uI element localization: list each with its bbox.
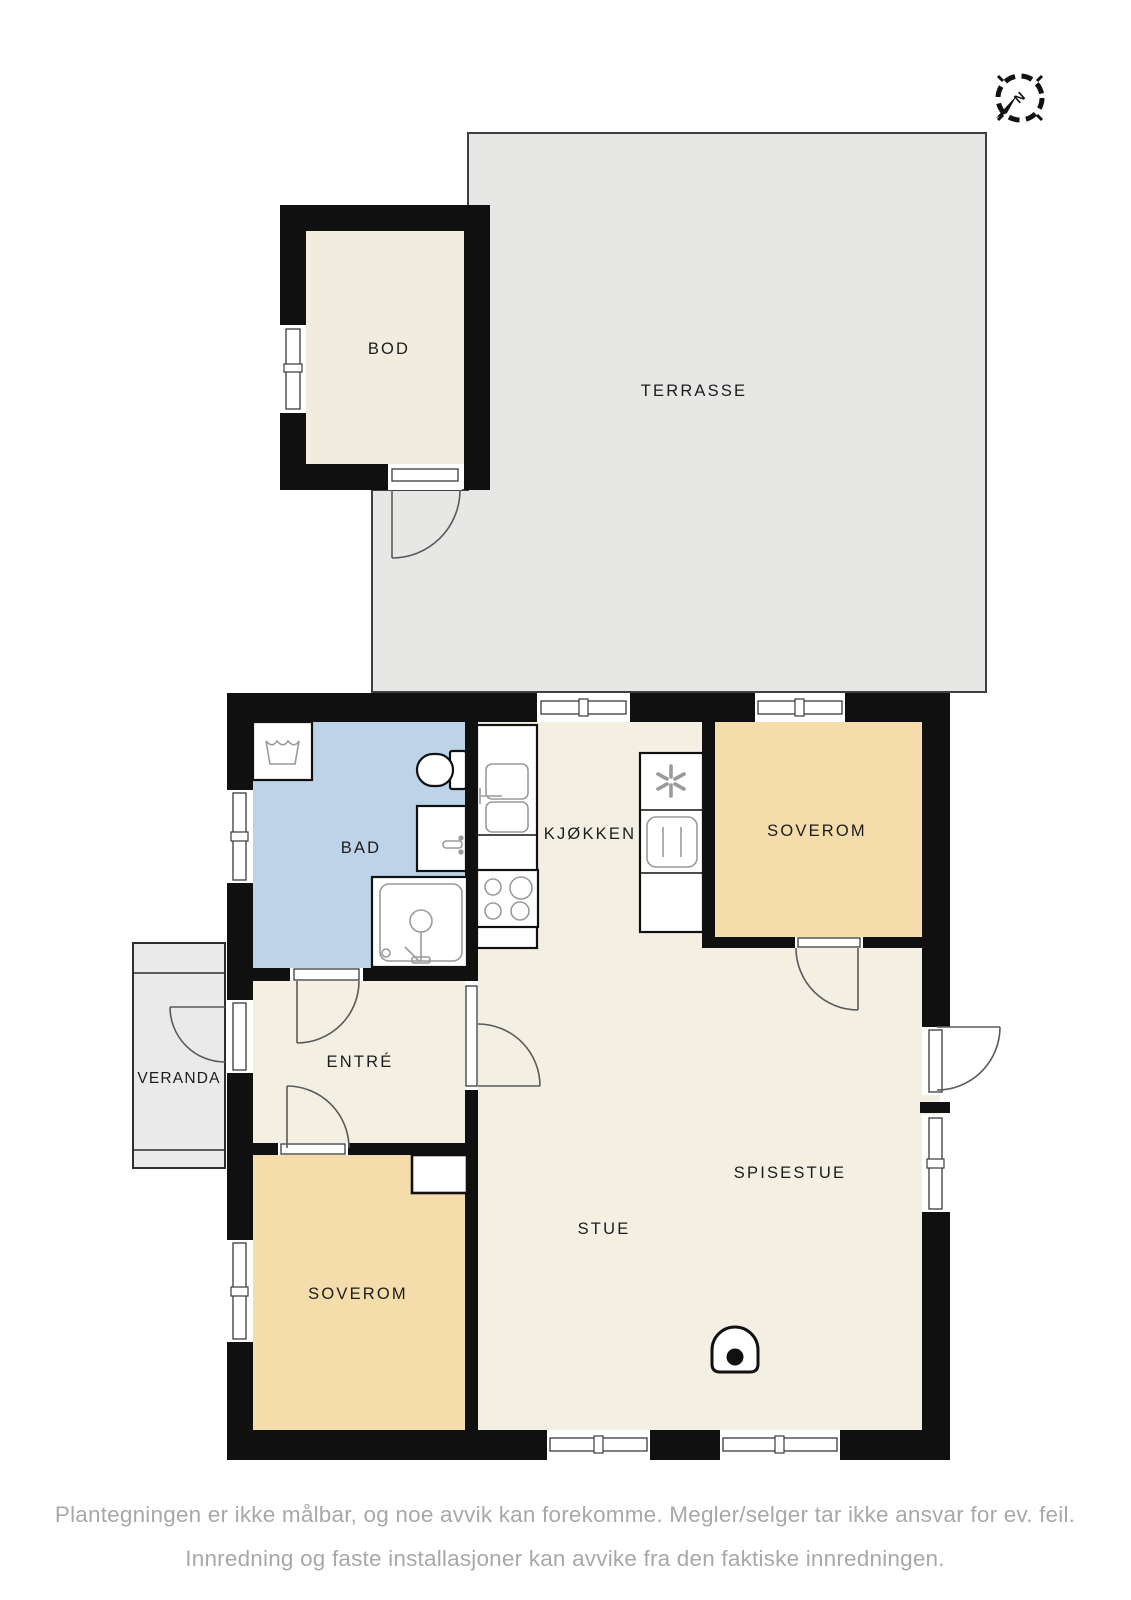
window-divider bbox=[284, 364, 302, 372]
compass-tick bbox=[1037, 76, 1042, 81]
hall-label: ENTRÉ bbox=[327, 1052, 394, 1071]
living-room-label: STUE bbox=[578, 1220, 631, 1238]
bedroom-sw-label: SOVEROM bbox=[308, 1285, 408, 1303]
counter-body bbox=[640, 753, 703, 932]
fireplace bbox=[712, 1327, 758, 1372]
bedroom-ne-label: SOVEROM bbox=[767, 822, 867, 840]
wall-segment bbox=[363, 968, 478, 981]
wall-segment bbox=[465, 1090, 478, 1430]
wall-segment bbox=[863, 937, 922, 948]
compass-north-label: N bbox=[1011, 89, 1028, 106]
wall-segment bbox=[630, 693, 755, 722]
floor-plan-drawing: TERRASSE BOD VERANDA bbox=[0, 0, 1131, 1600]
wall-segment bbox=[227, 693, 537, 722]
dining-room-label: SPISESTUE bbox=[734, 1164, 846, 1182]
floor-plan-page: TERRASSE BOD VERANDA bbox=[0, 0, 1131, 1600]
door-frame bbox=[798, 938, 860, 947]
wall-segment bbox=[227, 1430, 547, 1460]
window-divider bbox=[231, 832, 248, 841]
toilet-bowl bbox=[417, 754, 453, 786]
wall-segment bbox=[920, 1102, 950, 1113]
compass-tick bbox=[998, 76, 1003, 81]
kitchen-label: KJØKKEN bbox=[544, 825, 636, 843]
wall-segment bbox=[650, 1430, 720, 1460]
veranda-label: VERANDA bbox=[137, 1070, 220, 1087]
bathroom-label: BAD bbox=[341, 839, 382, 857]
disclaimer: Plantegningen er ikke målbar, og noe avv… bbox=[55, 1502, 1075, 1571]
toilet bbox=[417, 751, 466, 789]
terrace-label: TERRASSE bbox=[641, 382, 748, 400]
window bbox=[227, 790, 253, 883]
window bbox=[547, 1430, 650, 1460]
window bbox=[280, 325, 306, 413]
window-divider bbox=[231, 1287, 248, 1296]
wall-segment bbox=[464, 205, 490, 490]
window bbox=[537, 693, 630, 722]
door bbox=[922, 1027, 1000, 1095]
veranda-deck bbox=[133, 943, 225, 1168]
wall-segment bbox=[227, 1073, 253, 1240]
kitchen-counter-right bbox=[640, 753, 703, 932]
window-divider bbox=[927, 1159, 944, 1168]
stove-top bbox=[477, 870, 538, 927]
wall-segment bbox=[280, 464, 390, 490]
door-frame bbox=[281, 1144, 345, 1154]
door-frame bbox=[294, 969, 359, 980]
bathroom-sink bbox=[417, 806, 466, 871]
wall-segment bbox=[348, 1143, 478, 1155]
wardrobe bbox=[412, 1155, 467, 1193]
wall-segment bbox=[227, 883, 253, 1000]
stove bbox=[477, 870, 538, 927]
laundry-sink-cabinet bbox=[253, 722, 312, 780]
veranda: VERANDA bbox=[133, 943, 225, 1168]
wall-segment bbox=[702, 937, 795, 948]
storage-label: BOD bbox=[368, 340, 410, 358]
door-frame bbox=[929, 1030, 942, 1092]
door-frame bbox=[233, 1003, 246, 1070]
sink-faucet-handle bbox=[458, 835, 463, 840]
shower-base bbox=[372, 877, 467, 967]
wall-segment bbox=[227, 693, 253, 790]
compass-tick bbox=[1037, 115, 1042, 120]
wall-segment bbox=[922, 693, 950, 1027]
window-divider bbox=[594, 1436, 603, 1453]
disclaimer-line-2: Innredning og faste installasjoner kan a… bbox=[185, 1546, 944, 1571]
laundry-sink bbox=[253, 722, 312, 780]
wall-segment bbox=[922, 1212, 950, 1460]
window-divider bbox=[775, 1436, 784, 1453]
wall-segment bbox=[280, 205, 490, 231]
compass-icon: N bbox=[996, 76, 1042, 120]
window bbox=[227, 1240, 253, 1342]
fireplace-flue bbox=[727, 1349, 744, 1366]
kitchen-counter-left bbox=[477, 725, 538, 948]
window bbox=[755, 693, 845, 722]
window bbox=[922, 1115, 950, 1212]
window-divider bbox=[795, 699, 804, 716]
window bbox=[720, 1430, 840, 1460]
sink-faucet-handle bbox=[458, 849, 463, 854]
door-frame bbox=[392, 469, 458, 481]
disclaimer-line-1: Plantegningen er ikke målbar, og noe avv… bbox=[55, 1502, 1075, 1527]
wall-segment bbox=[280, 205, 306, 325]
door-frame bbox=[466, 986, 477, 1086]
house-floors bbox=[240, 705, 940, 1445]
shower bbox=[372, 877, 467, 967]
window-divider bbox=[579, 699, 588, 716]
wall-segment bbox=[253, 1143, 278, 1155]
wall-segment bbox=[253, 968, 290, 981]
